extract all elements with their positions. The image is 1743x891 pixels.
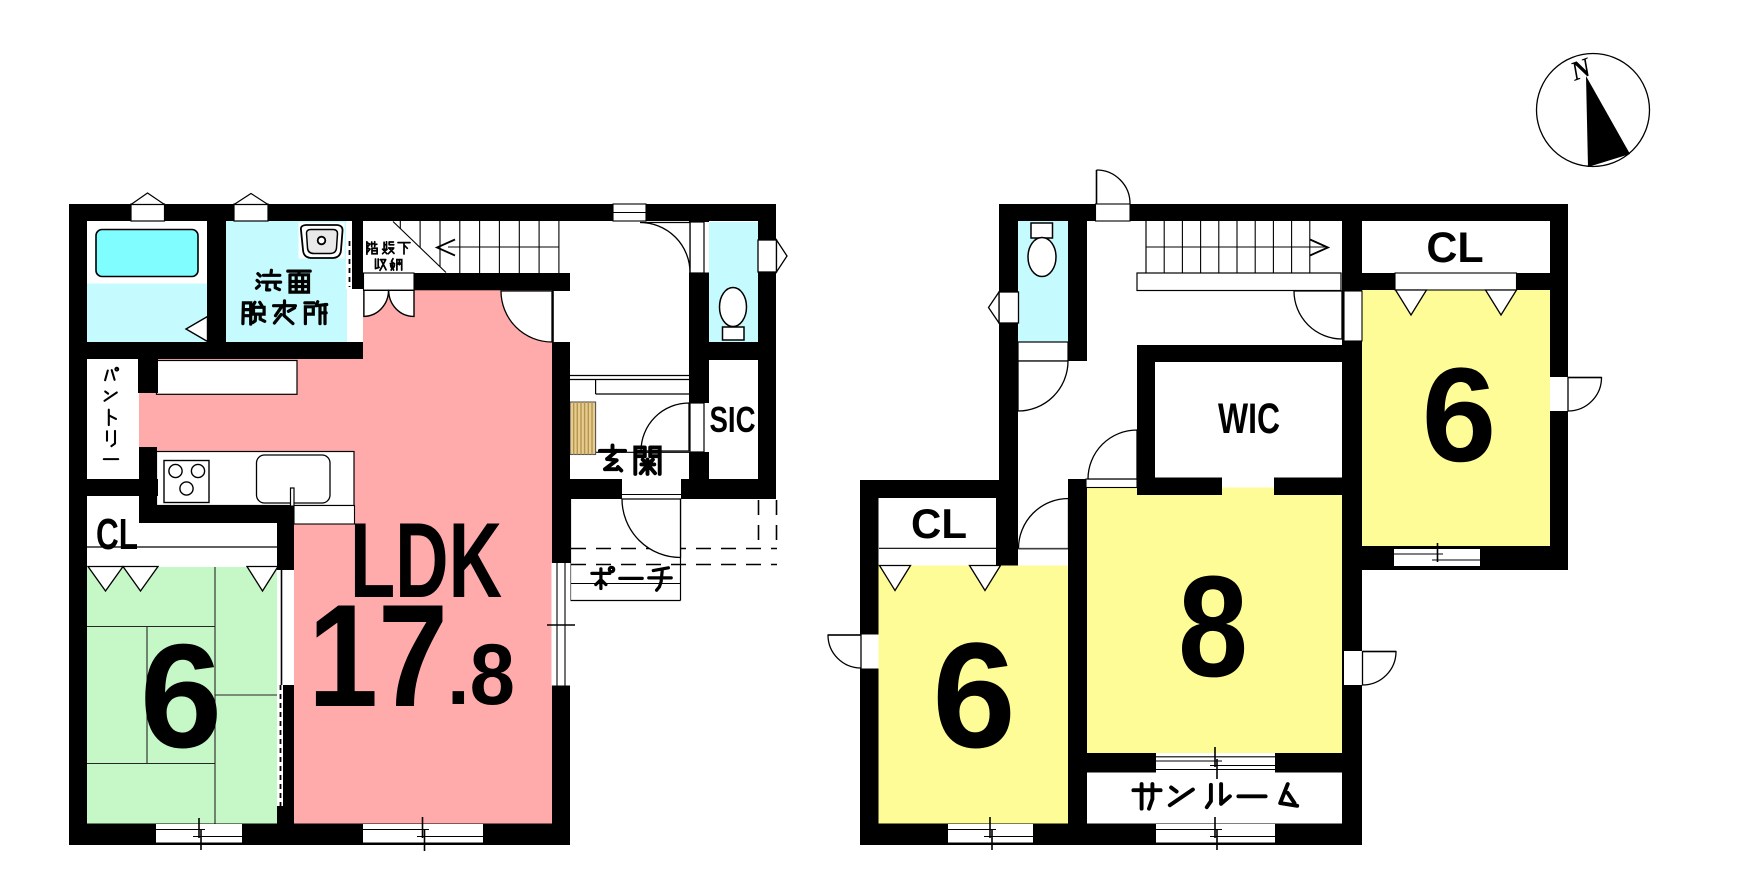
- svg-text:.8: .8: [447, 627, 515, 723]
- svg-text:CL: CL: [96, 510, 138, 559]
- svg-text:8: 8: [1178, 546, 1248, 707]
- svg-text:WIC: WIC: [1218, 395, 1280, 443]
- svg-text:6: 6: [140, 614, 222, 779]
- svg-text:6: 6: [1422, 341, 1497, 490]
- svg-text:SIC: SIC: [710, 399, 756, 440]
- svg-text:6: 6: [932, 611, 1015, 779]
- svg-text:CL: CL: [1426, 224, 1483, 272]
- svg-text:17: 17: [308, 574, 448, 737]
- svg-text:CL: CL: [911, 500, 967, 547]
